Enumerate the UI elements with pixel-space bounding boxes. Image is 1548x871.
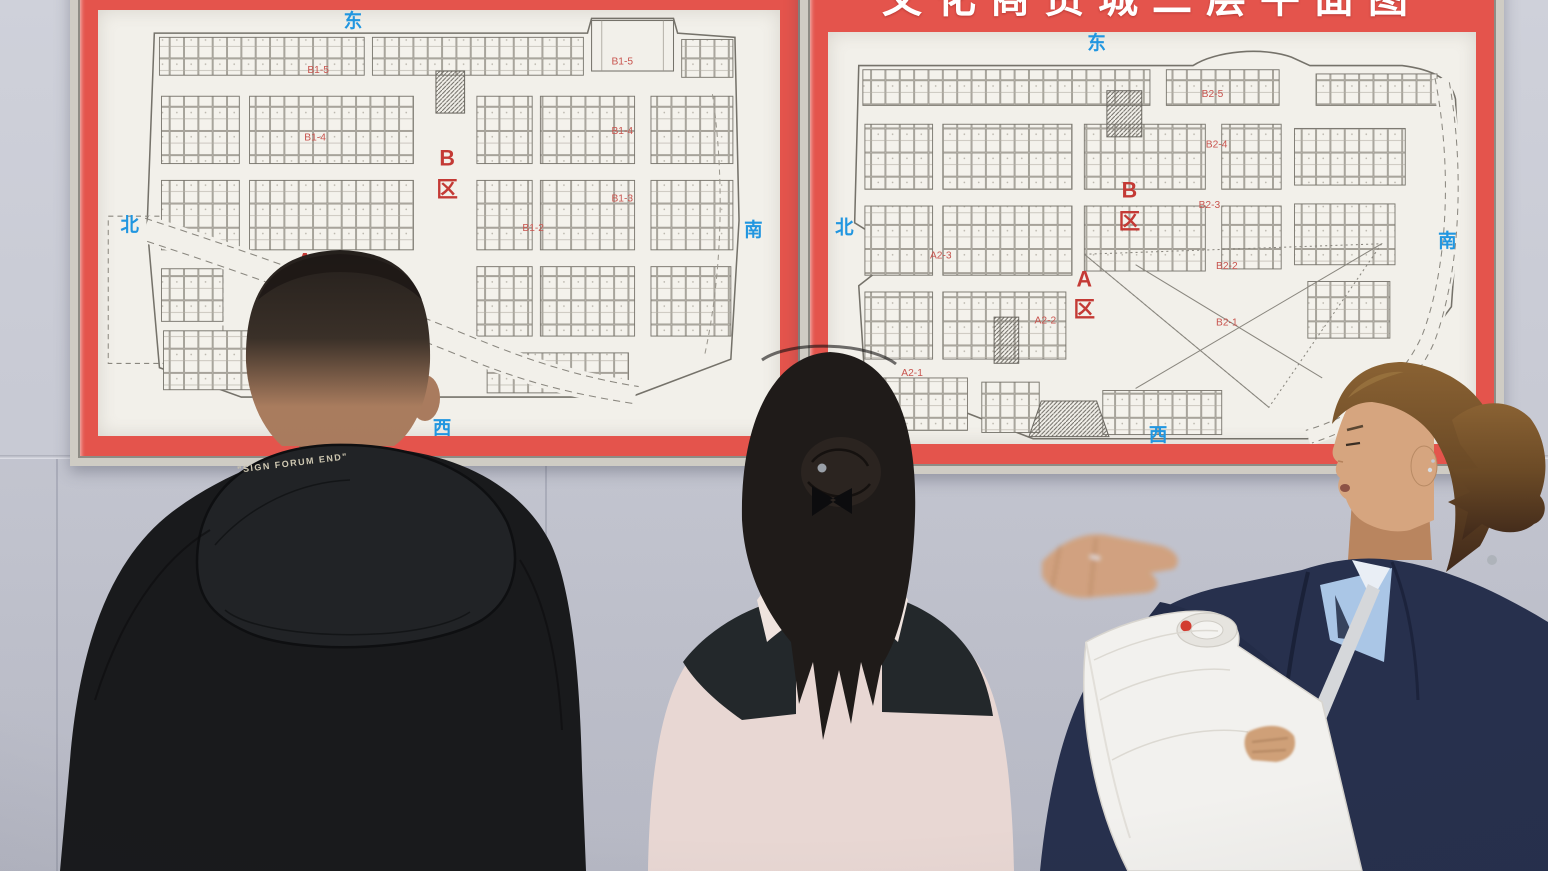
person-man: "SIGN FORUM END" <box>60 250 586 871</box>
person-woman-middle <box>648 346 1014 871</box>
person-woman-right <box>1040 362 1548 871</box>
right-woman-hairclip <box>1487 555 1497 565</box>
red-pen <box>1181 621 1192 632</box>
right-woman-hand-holding <box>1245 726 1296 762</box>
right-woman-mouth <box>1340 484 1350 492</box>
people-foreground: "SIGN FORUM END" <box>0 0 1548 871</box>
right-woman-ear <box>1411 446 1437 486</box>
right-woman-hand-pointing <box>1042 534 1178 597</box>
middle-woman-clip-jewel <box>818 464 827 473</box>
right-woman-earring <box>1428 468 1432 472</box>
photo-scene: 东 北 南 西 B 区 A 区 B1-5 B1-5 B1-4 B1-4 <box>0 0 1548 871</box>
